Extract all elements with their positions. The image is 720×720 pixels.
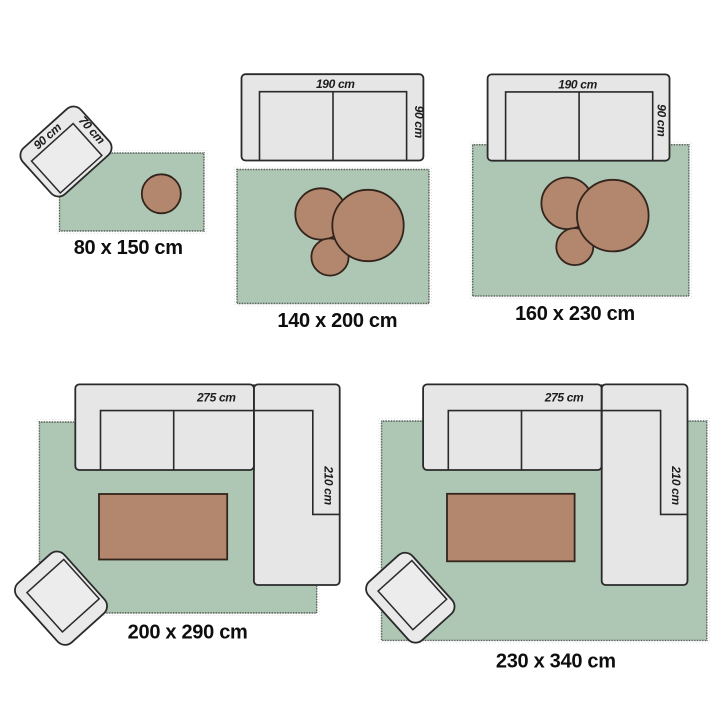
svg-text:90 cm: 90 cm bbox=[412, 106, 426, 139]
svg-text:210 cm: 210 cm bbox=[321, 465, 335, 505]
svg-text:230 x 340 cm: 230 x 340 cm bbox=[496, 651, 616, 673]
svg-text:275 cm: 275 cm bbox=[196, 390, 236, 404]
svg-text:140 x 200 cm: 140 x 200 cm bbox=[277, 310, 397, 332]
svg-text:190 cm: 190 cm bbox=[558, 77, 597, 91]
svg-text:190 cm: 190 cm bbox=[316, 77, 355, 91]
svg-text:200 x 290 cm: 200 x 290 cm bbox=[128, 622, 248, 644]
svg-text:90 cm: 90 cm bbox=[655, 104, 669, 137]
svg-text:275 cm: 275 cm bbox=[544, 390, 584, 404]
svg-text:210 cm: 210 cm bbox=[669, 465, 683, 505]
svg-text:80 x 150 cm: 80 x 150 cm bbox=[74, 237, 183, 259]
svg-text:160 x 230 cm: 160 x 230 cm bbox=[515, 303, 635, 325]
